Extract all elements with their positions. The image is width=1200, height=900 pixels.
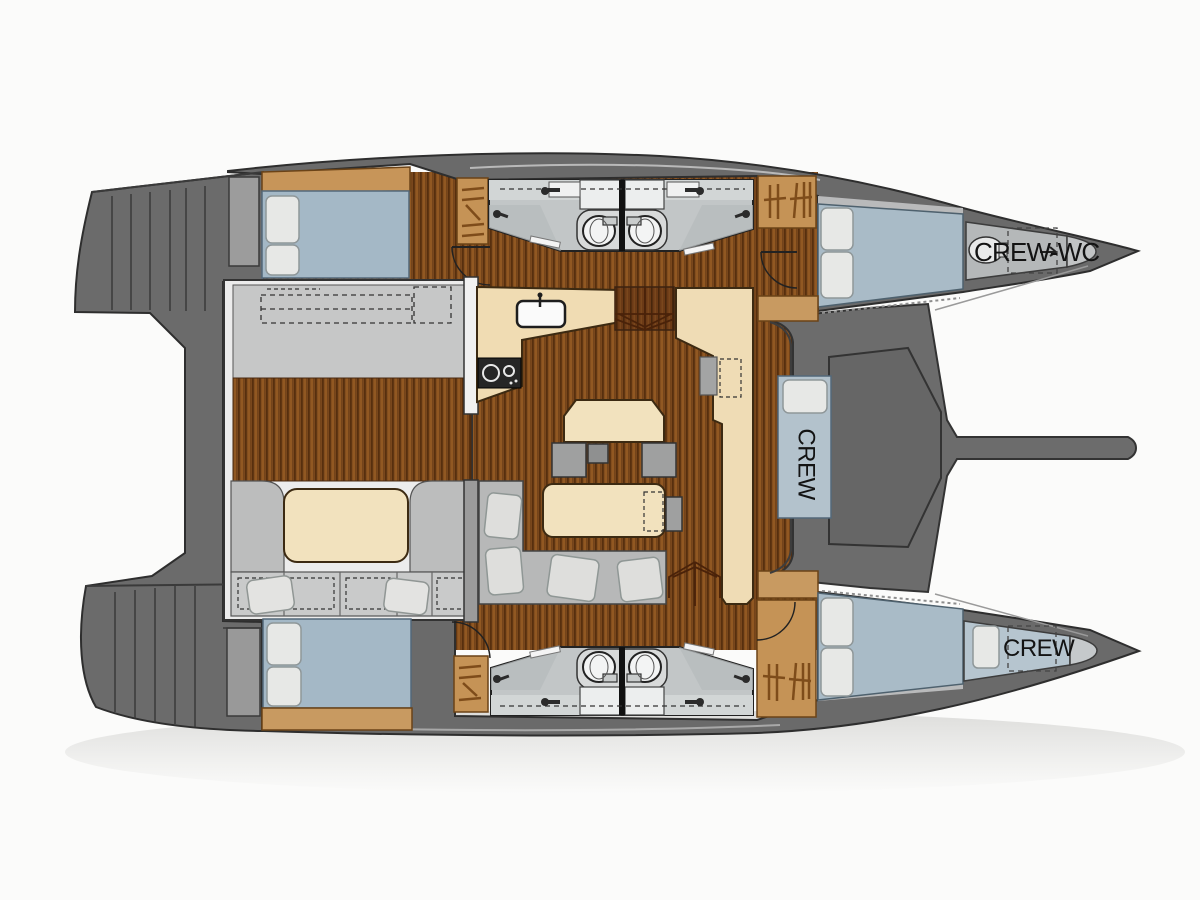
svg-text:CREW: CREW [793,428,820,500]
svg-text:CREW-WC: CREW-WC [974,237,1099,267]
svg-text:CREW: CREW [1003,635,1075,662]
